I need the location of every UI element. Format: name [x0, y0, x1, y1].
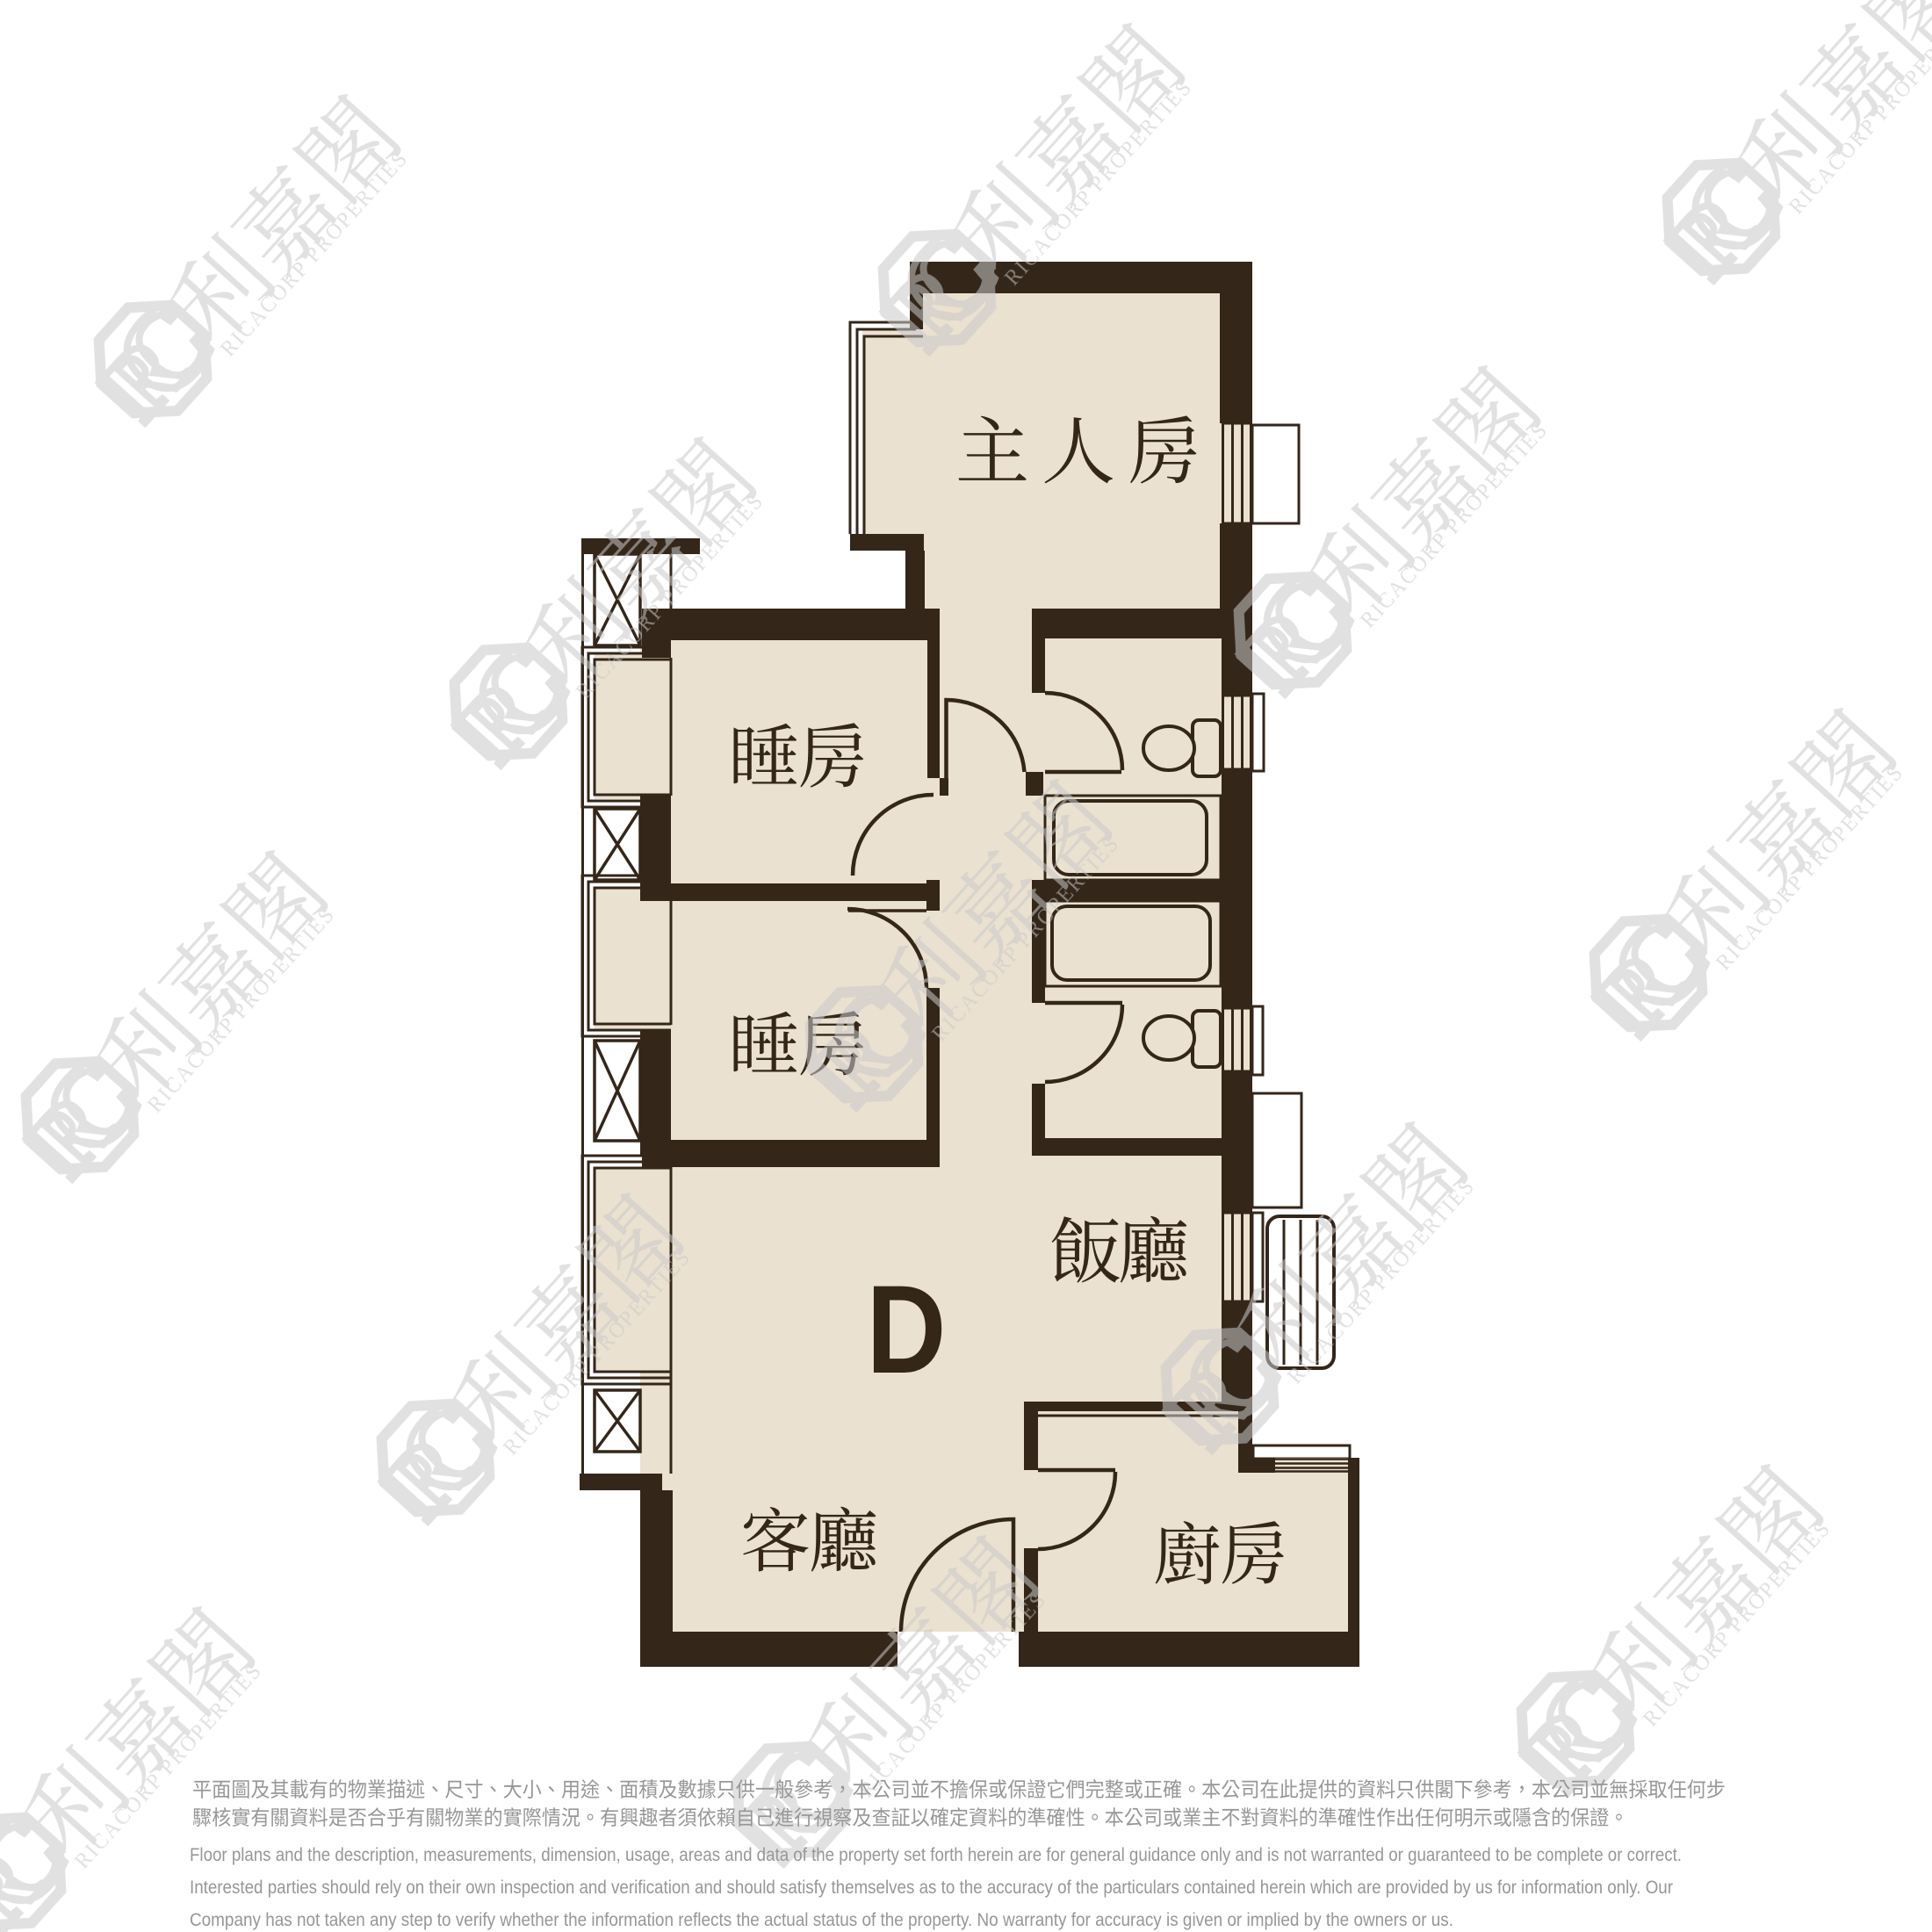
svg-text:Floor plans and the descriptio: Floor plans and the description, measure… — [190, 1844, 1682, 1865]
svg-text:Company has not taken any step: Company has not taken any step to verify… — [190, 1909, 1453, 1930]
svg-text:D: D — [867, 1258, 947, 1399]
svg-text:Interested parties should rely: Interested parties should rely on their … — [190, 1877, 1673, 1898]
